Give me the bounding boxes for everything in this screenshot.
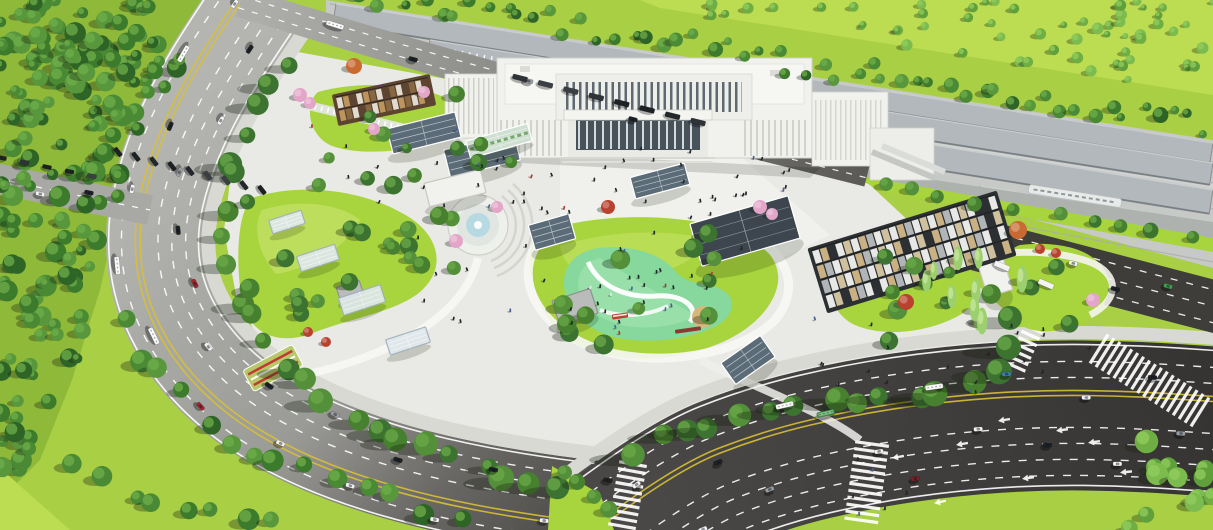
tree-highlight [703, 275, 711, 283]
accent-highlight [450, 235, 457, 242]
tree-highlight [1143, 103, 1148, 108]
car-glass [976, 428, 980, 431]
tree-highlight [983, 286, 994, 297]
tree-highlight [1122, 48, 1127, 53]
tree-highlight [881, 333, 891, 343]
pedestrian-figure [509, 308, 511, 312]
tree-highlight [312, 295, 320, 303]
tree-highlight [685, 240, 696, 251]
tree-highlight [1170, 27, 1175, 32]
tree-highlight [860, 22, 864, 26]
car-glass [1005, 373, 1009, 376]
tree-highlight [408, 169, 416, 177]
tree-highlight [59, 231, 67, 239]
tree-highlight [402, 1, 407, 6]
pedestrian-figure [593, 178, 595, 182]
tree-highlight [362, 480, 372, 490]
tree-highlight [555, 297, 566, 308]
tree-highlight [21, 296, 32, 307]
tree-highlight [1183, 21, 1187, 25]
tree-highlight [1023, 58, 1029, 64]
tree-highlight [770, 3, 775, 8]
tree-highlight [545, 6, 551, 12]
tree-highlight [1136, 34, 1142, 40]
tree-highlight [548, 478, 561, 491]
tree-highlight [1148, 465, 1160, 477]
tree-highlight [387, 241, 395, 249]
tree-highlight [50, 187, 62, 199]
tree-highlight [15, 9, 22, 16]
tree-highlight [869, 58, 876, 65]
tree-highlight [894, 28, 898, 32]
tree-highlight [16, 363, 25, 372]
tree-highlight [902, 40, 908, 46]
tree-highlight [23, 442, 31, 450]
poplar-highlight [975, 250, 980, 261]
tree-highlight [1113, 60, 1118, 65]
tree-highlight [570, 475, 579, 484]
tree-highlight [92, 96, 98, 102]
accent-highlight [304, 328, 309, 333]
tree-highlight [512, 10, 518, 16]
tree-highlight [1195, 469, 1206, 480]
poplar-highlight [948, 287, 953, 299]
tree-highlight [1156, 12, 1160, 16]
tree-highlight [143, 1, 150, 8]
tree-highlight [1183, 109, 1188, 114]
tree-highlight [1141, 5, 1144, 8]
tree-highlight [1055, 208, 1063, 216]
pedestrian-figure [884, 506, 886, 510]
tree-highlight [324, 153, 330, 159]
tree-highlight [722, 11, 726, 15]
tree-highlight [371, 0, 379, 8]
accent-highlight [322, 338, 327, 343]
tree-highlight [263, 451, 275, 463]
tree-highlight [623, 445, 636, 458]
tree-highlight [988, 84, 995, 91]
tree-highlight [386, 177, 396, 187]
tree-highlight [1093, 23, 1099, 29]
tree-highlight [86, 162, 98, 174]
poplar-highlight [1017, 268, 1023, 282]
tree-highlight [602, 502, 611, 511]
pedestrian-figure [712, 195, 714, 199]
tree-highlight [405, 252, 412, 259]
tree-highlight [448, 262, 456, 270]
pedestrian-figure [417, 235, 419, 239]
tree-highlight [148, 359, 159, 370]
tree-highlight [29, 61, 35, 67]
tree-highlight [821, 59, 828, 66]
tree-highlight [51, 68, 62, 79]
tree-highlight [129, 25, 139, 35]
tree-highlight [1123, 33, 1126, 36]
tree-highlight [919, 9, 925, 15]
rooftop-unit-1 [520, 66, 530, 72]
tree-highlight [506, 157, 513, 164]
tree-highlight [1108, 101, 1116, 109]
accent-highlight [1036, 245, 1041, 250]
car-glass [1116, 463, 1120, 466]
tree-highlight [431, 208, 441, 218]
tree-highlight [416, 433, 429, 446]
tree-highlight [1086, 66, 1092, 72]
pedestrian-figure [610, 293, 612, 297]
tree-highlight [670, 34, 678, 42]
tree-highlight [1062, 316, 1072, 326]
tree-highlight [8, 113, 15, 120]
tree-highlight [441, 447, 451, 457]
tree-highlight [113, 15, 122, 24]
tree-highlight [1154, 19, 1160, 25]
tree-highlight [414, 506, 426, 518]
tree-highlight [385, 429, 398, 442]
tree-highlight [849, 3, 854, 8]
tree-highlight [528, 13, 534, 19]
accent-highlight [754, 201, 761, 208]
tree-highlight [64, 40, 70, 46]
tree-highlight [1104, 31, 1108, 35]
tree-highlight [142, 86, 150, 94]
tree-highlight [297, 458, 306, 467]
tree-highlight [342, 274, 352, 284]
tree-highlight [575, 13, 582, 20]
tree-highlight [1118, 61, 1124, 67]
pedestrian-figure [710, 212, 712, 216]
pedestrian-figure [345, 144, 347, 148]
tree-highlight [29, 214, 37, 222]
tree-highlight [293, 297, 302, 306]
tree-highlight [97, 144, 107, 154]
tree-highlight [906, 182, 914, 190]
tree-highlight [30, 28, 40, 38]
tree-highlight [382, 485, 392, 495]
tree-highlight [1122, 521, 1131, 530]
tree-highlight [557, 29, 564, 36]
tree-highlight [447, 11, 453, 17]
tree-highlight [595, 336, 606, 347]
tree-highlight [921, 23, 926, 28]
tree-highlight [7, 215, 15, 223]
tree-highlight [871, 389, 881, 399]
tree-highlight [57, 139, 63, 145]
pedestrian-figure [838, 382, 840, 386]
tree-highlight [248, 95, 260, 107]
tree-highlight [224, 163, 236, 175]
tree-highlight [1116, 10, 1122, 16]
tree-highlight [918, 0, 923, 5]
tree-highlight [75, 310, 83, 318]
tree-highlight [998, 336, 1012, 350]
tree-highlight [47, 243, 59, 255]
tree-highlight [119, 34, 129, 44]
accent-highlight [1052, 249, 1057, 254]
tree-highlight [802, 71, 808, 77]
tree-highlight [907, 258, 917, 268]
tree-highlight [829, 75, 835, 81]
tree-highlight [131, 51, 137, 57]
tree-highlight [78, 65, 88, 75]
tree-highlight [945, 79, 953, 87]
car-glass [1046, 444, 1050, 447]
tree-highlight [507, 4, 513, 10]
tree-highlight [4, 256, 15, 267]
tree-highlight [1171, 106, 1176, 111]
tree-highlight [282, 58, 291, 67]
pedestrian-figure [523, 191, 525, 195]
tree-highlight [247, 449, 257, 459]
tree-highlight [988, 360, 1002, 374]
tree-highlight [329, 470, 340, 481]
tree-highlight [964, 14, 969, 19]
tree-highlight [1000, 308, 1013, 321]
tree-highlight [1072, 34, 1078, 40]
tree-highlight [6, 423, 17, 434]
tree-highlight [204, 503, 212, 511]
accent-highlight [1011, 223, 1020, 232]
accent-highlight [369, 124, 375, 130]
tree-highlight [709, 43, 717, 51]
tree-highlight [35, 329, 42, 336]
tree-highlight [143, 495, 153, 505]
tree-highlight [241, 195, 249, 203]
tree-highlight [278, 251, 288, 261]
tree-highlight [633, 303, 640, 310]
tree-highlight [132, 351, 145, 364]
tree-highlight [610, 34, 616, 40]
tree-highlight [1125, 76, 1129, 80]
tree-highlight [449, 87, 458, 96]
tree-highlight [59, 267, 70, 278]
tree-highlight [960, 91, 967, 98]
tree-highlight [818, 3, 823, 8]
tree-highlight [402, 144, 408, 150]
tree-highlight [1136, 431, 1149, 444]
tree-highlight [27, 10, 35, 18]
tree-highlight [1049, 260, 1058, 269]
tree-highlight [640, 31, 648, 39]
tree-highlight [588, 491, 596, 499]
tree-highlight [1159, 4, 1164, 9]
fountain-jet [474, 221, 482, 229]
pedestrian-figure [629, 276, 631, 280]
tree-highlight [968, 198, 976, 206]
tree-highlight [701, 308, 711, 318]
tree-highlight [1041, 91, 1047, 97]
tree-highlight [558, 316, 569, 327]
accent-highlight [348, 60, 356, 68]
tree-highlight [19, 132, 27, 140]
tree-highlight [104, 96, 116, 108]
tree-highlight [174, 383, 183, 392]
tree-highlight [354, 225, 364, 235]
accent-highlight [492, 202, 498, 208]
tree-highlight [1115, 220, 1122, 227]
tree-highlight [944, 267, 951, 274]
tree-highlight [155, 56, 161, 62]
tree-highlight [41, 279, 47, 285]
pedestrian-figure [311, 124, 313, 128]
accent-highlight [767, 209, 773, 215]
tree-highlight [856, 69, 862, 75]
pedestrian-figure [541, 206, 543, 210]
tree-highlight [148, 64, 157, 73]
tree-highlight [111, 110, 118, 117]
tree-highlight [725, 38, 729, 42]
tree-highlight [112, 191, 119, 198]
tree-highlight [106, 128, 115, 137]
aerial-render-stage [0, 0, 1213, 530]
tree-highlight [350, 411, 361, 422]
tree-highlight [344, 222, 353, 231]
tree-highlight [243, 305, 254, 316]
accent-highlight [419, 87, 425, 93]
tree-highlight [878, 250, 887, 259]
tree-highlight [1186, 494, 1197, 505]
tree-highlight [1139, 508, 1148, 517]
tree-highlight [361, 172, 369, 180]
poplar-highlight [970, 299, 976, 311]
tree-highlight [310, 390, 324, 404]
tree-highlight [1190, 62, 1196, 68]
car-glass [1179, 432, 1183, 435]
tree-highlight [64, 253, 72, 261]
tree-highlight [755, 47, 760, 52]
poplar-highlight [931, 264, 935, 273]
pedestrian-figure [643, 283, 645, 287]
tree-highlight [30, 101, 39, 110]
tree-highlight [25, 313, 34, 322]
tree-highlight [486, 3, 492, 9]
tree-highlight [48, 319, 55, 326]
poplar-highlight [954, 249, 959, 261]
tree-highlight [75, 323, 84, 332]
tree-highlight [204, 417, 214, 427]
tree-highlight [55, 213, 63, 221]
tree-highlight [1198, 43, 1204, 49]
tree-highlight [264, 513, 273, 522]
tree-highlight [1199, 131, 1204, 136]
tree-highlight [708, 252, 716, 260]
tree-highlight [85, 33, 95, 43]
tree-highlight [159, 81, 166, 88]
tree-highlight [6, 354, 12, 360]
tree-highlight [634, 32, 639, 37]
tree-highlight [240, 128, 249, 137]
accent-highlight [294, 89, 301, 96]
tree-highlight [1144, 224, 1153, 233]
tree-highlight [1169, 469, 1180, 480]
station-plaza-aerial-render [0, 0, 1213, 530]
tree-highlight [44, 97, 50, 103]
tree-highlight [923, 78, 929, 84]
tree-highlight [182, 503, 192, 513]
tree-highlight [776, 46, 783, 53]
tree-highlight [66, 49, 75, 58]
tree-highlight [1116, 1, 1122, 7]
tree-highlight [740, 52, 746, 58]
tree-highlight [1080, 18, 1085, 23]
pedestrian-figure [645, 199, 647, 203]
accent-highlight [1087, 294, 1094, 301]
accent-highlight [602, 201, 609, 208]
car-glass [1085, 396, 1089, 399]
tree-highlight [295, 369, 307, 381]
tree-highlight [77, 246, 83, 252]
poplar-highlight [972, 281, 977, 293]
tree-highlight [241, 280, 252, 291]
tree-highlight [969, 4, 974, 9]
tree-highlight [22, 150, 32, 160]
tree-highlight [119, 311, 129, 321]
tree-highlight [113, 170, 121, 178]
tree-highlight [1188, 232, 1195, 239]
tree-highlight [1090, 216, 1097, 223]
tree-highlight [1090, 110, 1098, 118]
tree-highlight [256, 334, 265, 343]
tree-highlight [1010, 4, 1015, 9]
tree-highlight [439, 9, 447, 17]
portico-slab [564, 110, 712, 120]
tree-highlight [1069, 105, 1075, 111]
tree-highlight [11, 86, 17, 92]
tree-highlight [117, 64, 128, 75]
pedestrian-figure [656, 270, 658, 274]
tree-highlight [50, 19, 58, 27]
tree-highlight [33, 71, 42, 80]
tree-highlight [219, 202, 231, 214]
tree-highlight [827, 389, 841, 403]
tree-highlight [1036, 29, 1042, 35]
tree-highlight [914, 77, 919, 82]
tree-highlight [456, 512, 465, 521]
tree-highlight [370, 421, 383, 434]
tree-highlight [780, 69, 786, 75]
tree-highlight [1117, 114, 1122, 119]
tree-highlight [13, 396, 20, 403]
tree-highlight [688, 29, 694, 35]
tree-highlight [1072, 53, 1078, 59]
tree-highlight [578, 308, 588, 318]
tree-highlight [280, 360, 292, 372]
tree-highlight [85, 262, 91, 268]
tree-highlight [148, 37, 154, 43]
tree-highlight [105, 52, 114, 61]
tree-highlight [1054, 106, 1062, 114]
tree-highlight [365, 111, 372, 118]
tree-highlight [988, 20, 993, 25]
tree-highlight [743, 3, 749, 9]
tree-highlight [93, 467, 104, 478]
tree-highlight [997, 33, 1002, 38]
tree-highlight [932, 191, 939, 198]
tree-highlight [97, 12, 107, 22]
tree-highlight [1154, 108, 1163, 117]
tree-highlight [224, 437, 234, 447]
tree-highlight [77, 225, 85, 233]
tree-highlight [519, 474, 531, 486]
tree-highlight [51, 329, 58, 336]
tree-highlight [880, 178, 888, 186]
tree-highlight [475, 138, 483, 146]
tree-highlight [1025, 101, 1031, 107]
tree-highlight [592, 37, 597, 42]
tree-highlight [313, 179, 321, 187]
tree-highlight [1105, 21, 1110, 26]
tree-highlight [401, 222, 410, 231]
tree-highlight [959, 49, 964, 54]
